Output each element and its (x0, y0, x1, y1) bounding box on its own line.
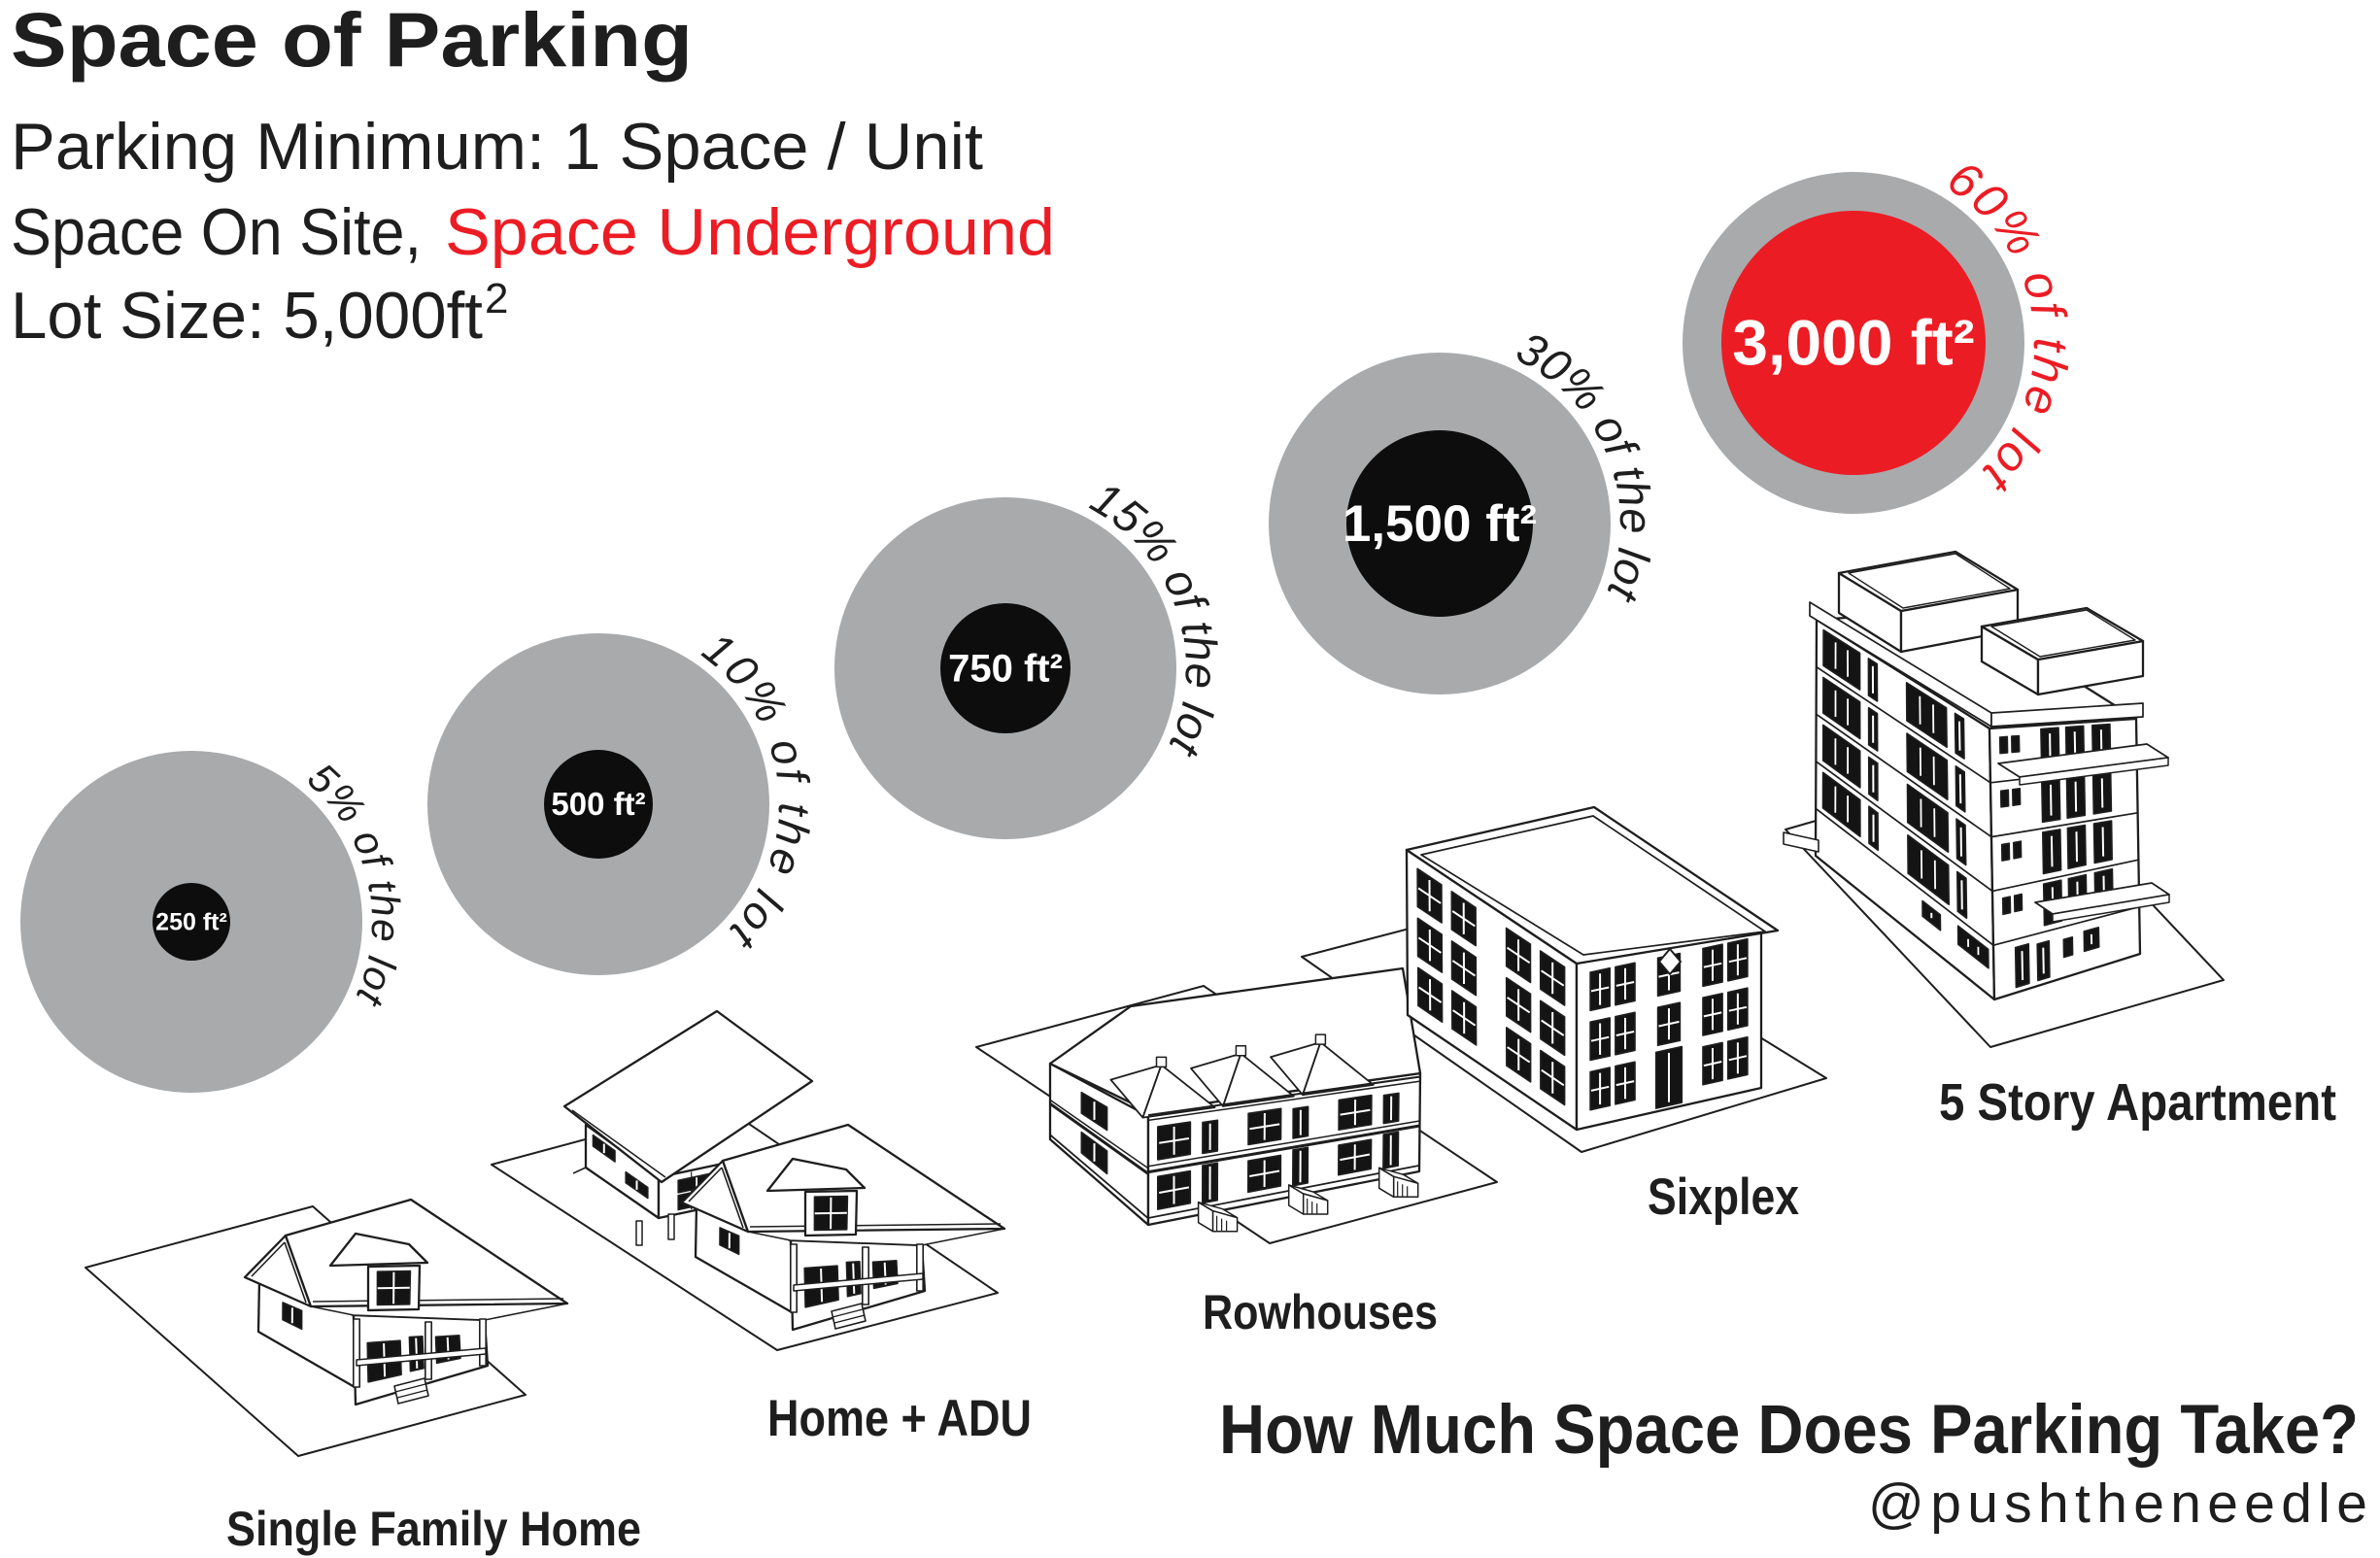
svg-text:750 ft²: 750 ft² (948, 648, 1063, 691)
svg-text:1,500 ft²: 1,500 ft² (1343, 495, 1537, 553)
svg-text:3,000 ft²: 3,000 ft² (1732, 306, 1974, 378)
svg-text:Parking Minimum: 1 Space / Uni: Parking Minimum: 1 Space / Unit (11, 110, 983, 184)
svg-text:Lot Size: 5,000ft: Lot Size: 5,000ft (11, 279, 483, 353)
svg-text:Single Family Home: Single Family Home (226, 1502, 641, 1556)
svg-text:Home + ADU: Home + ADU (767, 1390, 1032, 1447)
svg-text:5 Story Apartment: 5 Story Apartment (1939, 1073, 2336, 1132)
svg-text:Space Underground: Space Underground (445, 195, 1055, 269)
svg-text:2: 2 (485, 275, 508, 322)
svg-text:250 ft²: 250 ft² (155, 909, 227, 936)
svg-text:Space On Site,: Space On Site, (11, 195, 422, 269)
svg-text:Sixplex: Sixplex (1648, 1168, 1799, 1226)
svg-text:500 ft²: 500 ft² (551, 786, 645, 822)
svg-text:@pushtheneedle: @pushtheneedle (1868, 1473, 2367, 1535)
svg-text:Space of Parking: Space of Parking (11, 0, 693, 83)
svg-text:Rowhouses: Rowhouses (1203, 1285, 1438, 1339)
svg-text:How Much Space Does Parking Ta: How Much Space Does Parking Take? (1219, 1392, 2359, 1469)
